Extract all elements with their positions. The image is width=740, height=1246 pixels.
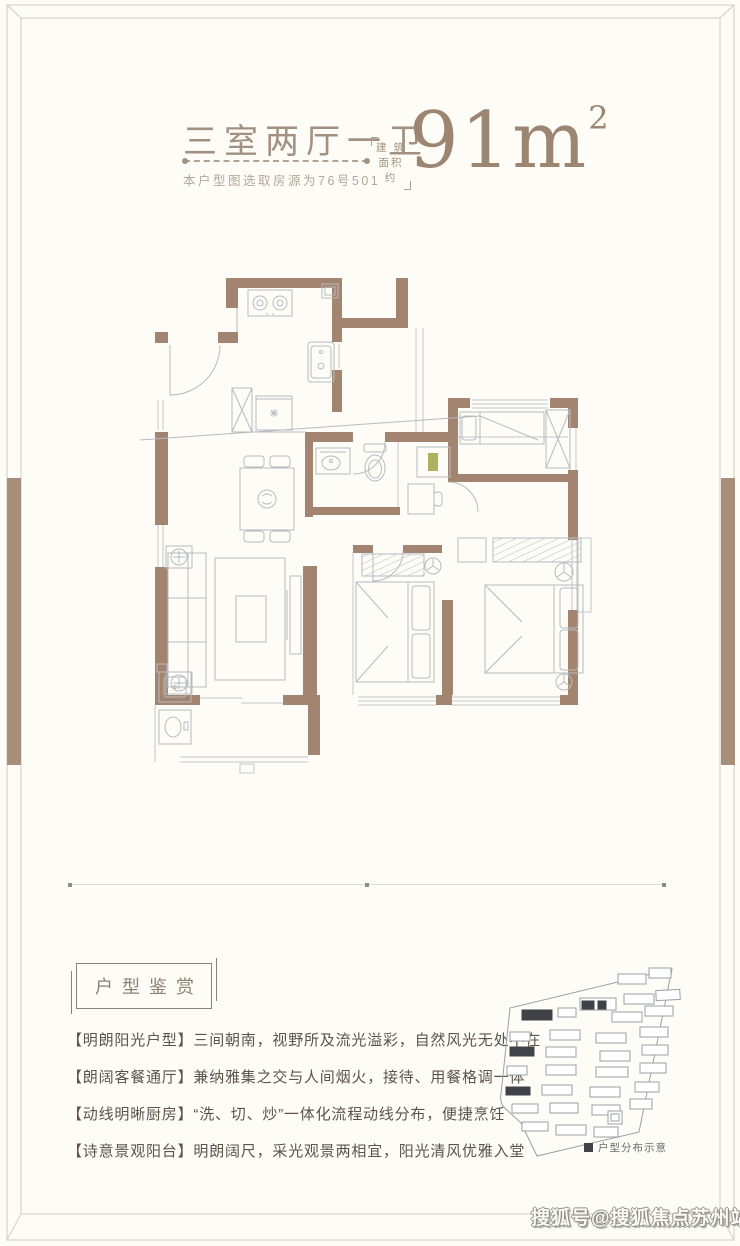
desk-icon xyxy=(408,484,442,514)
nightstand-icon xyxy=(458,538,486,562)
kitchen-sink-icon xyxy=(308,342,334,382)
appliance-icon xyxy=(256,396,292,430)
site-map-drawing xyxy=(492,946,697,1161)
dining-chair-icon xyxy=(244,456,290,542)
area-label-line1: 建 筑 xyxy=(376,142,406,154)
section-divider xyxy=(68,884,666,885)
frame-accent-bar-right xyxy=(721,478,735,765)
section-title: 户型鉴赏 xyxy=(95,977,203,997)
washbasin-icon xyxy=(316,448,350,474)
coffee-table-icon xyxy=(236,596,266,642)
frame-accent-bar-left xyxy=(7,478,21,765)
wardrobe-icon xyxy=(493,538,581,562)
page-subtitle: 本户型图选取房源为76号501 xyxy=(183,170,380,189)
legend-swatch xyxy=(584,1143,593,1152)
site-map: 户型分布示意 xyxy=(492,946,697,1161)
air-conditioner-icon xyxy=(555,563,573,581)
area-value: 91m2 xyxy=(409,96,609,186)
title-dashed-rule xyxy=(184,160,368,162)
stove-icon xyxy=(248,290,292,316)
area-label: 建 筑 面积约 xyxy=(371,137,411,190)
section-title-box: 户型鉴赏 xyxy=(76,963,212,1009)
walls xyxy=(155,278,578,755)
poster-canvas: { "page": { "background": "#fdfcf7", "fr… xyxy=(0,0,740,1246)
washing-machine-icon xyxy=(159,710,191,744)
bed-icon xyxy=(356,582,434,682)
frame-miter-tl xyxy=(7,5,21,18)
area-label-line2: 面积约 xyxy=(379,157,404,184)
hall-cabinet-icon xyxy=(417,447,450,477)
floor-plan xyxy=(140,270,600,790)
toilet-icon xyxy=(364,444,386,481)
wardrobe-icon xyxy=(546,410,570,468)
watermark: 搜狐号@搜狐焦点苏州站 xyxy=(531,1203,740,1230)
legend-label: 户型分布示意 xyxy=(598,1140,667,1155)
wardrobe-icon xyxy=(362,554,424,576)
air-conditioner-icon xyxy=(425,558,441,574)
fridge-icon xyxy=(232,388,252,432)
rug xyxy=(215,558,285,680)
tv-cabinet-icon xyxy=(287,576,301,654)
frame-miter-bl xyxy=(7,1214,21,1240)
area-superscript: 2 xyxy=(588,99,608,137)
site-map-legend: 户型分布示意 xyxy=(584,1140,667,1155)
frame-miter-tr xyxy=(720,5,734,18)
dining-table-icon xyxy=(240,468,294,530)
